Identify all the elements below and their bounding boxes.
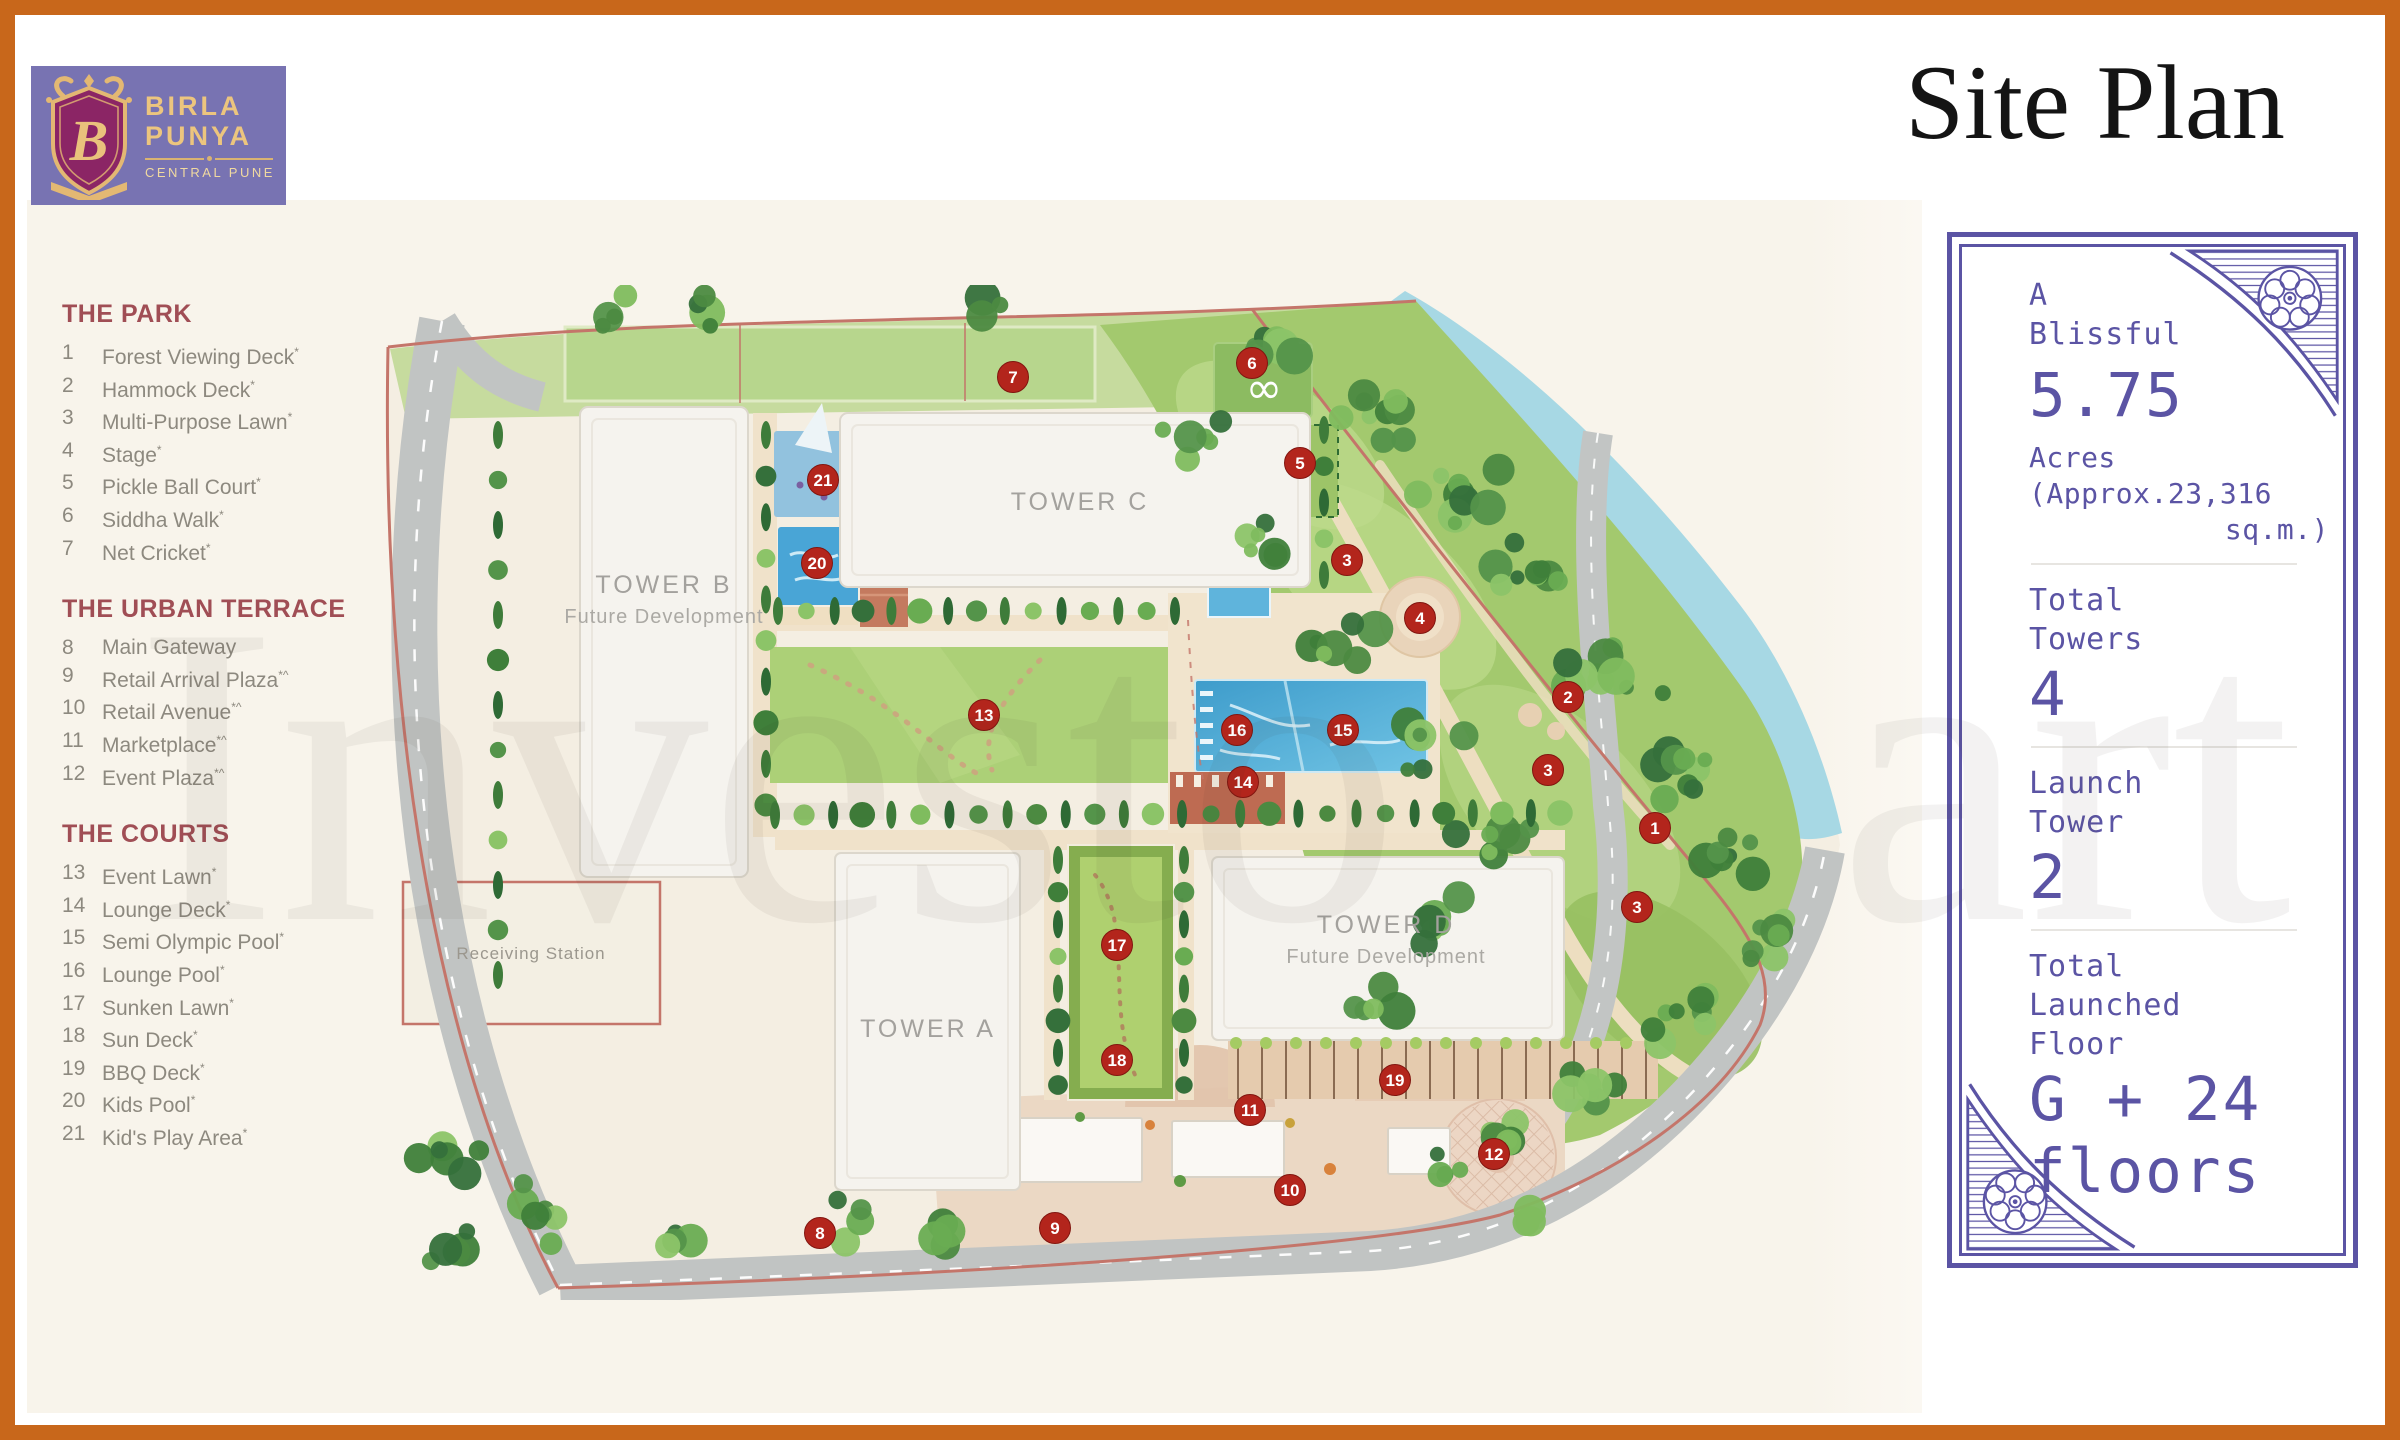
logo-tagline: CENTRAL PUNE [145,165,275,180]
svg-text:2: 2 [1563,688,1572,707]
legend-item: 14Lounge Deck* [62,892,377,925]
svg-text:16: 16 [1228,721,1247,740]
legend-item-label: Stage* [102,437,377,470]
svg-text:12: 12 [1485,1145,1504,1164]
map-marker-3: 3 [1332,545,1363,576]
legend-item-label: Lounge Deck* [102,892,377,925]
legend-item-number: 16 [62,957,102,990]
panel-stat-block: LaunchTower2 [2029,764,2329,914]
panel-stat-value: 5.75 [2029,360,2329,432]
legend-item-number: 6 [62,502,102,535]
legend-item: 18Sun Deck* [62,1022,377,1055]
legend-item-number: 3 [62,404,102,437]
legend-section: THE COURTS13Event Lawn*14Lounge Deck*15S… [62,820,377,1152]
info-panel-content: ABlissful5.75Acres(Approx.23,316sq.m.)To… [2029,276,2329,1208]
legend-item-number: 2 [62,372,102,405]
legend-item-label: Sun Deck* [102,1022,377,1055]
panel-stat-block: ABlissful5.75Acres(Approx.23,316sq.m.) [2029,276,2329,548]
legend-item-label: Net Cricket* [102,535,377,568]
map-marker-18: 18 [1102,1045,1133,1076]
map-marker-6: 6 [1237,348,1268,379]
map-marker-1: 1 [1640,813,1671,844]
svg-text:7: 7 [1008,368,1017,387]
panel-divider [2031,746,2297,748]
legend-item-number: 13 [62,859,102,892]
svg-text:6: 6 [1247,354,1256,373]
map-marker-11: 11 [1235,1095,1266,1126]
map-marker-10: 10 [1275,1175,1306,1206]
legend-item-number: 10 [62,694,102,727]
legend-item-label: Multi-Purpose Lawn* [102,404,377,437]
legend-item-label: Pickle Ball Court* [102,469,377,502]
svg-text:8: 8 [815,1224,824,1243]
receiving-station-label: Receiving Station [456,944,605,963]
legend-item-number: 9 [62,662,102,695]
svg-text:3: 3 [1632,898,1641,917]
hammock-deck-spot [1518,703,1542,727]
legend-item-number: 19 [62,1055,102,1088]
panel-stat-label: Towers [2029,620,2329,659]
legend-item: 6Siddha Walk* [62,502,377,535]
logo-name-line1: BIRLA [145,91,275,121]
panel-stat-value: floors [2029,1136,2329,1208]
panel-stat-label: Launch [2029,764,2329,803]
map-marker-9: 9 [1040,1213,1071,1244]
svg-text:20: 20 [808,554,827,573]
legend-item-number: 15 [62,924,102,957]
tower-a-label: TOWER A [860,1015,996,1043]
legend-item: 16Lounge Pool* [62,957,377,990]
svg-text:14: 14 [1234,773,1253,792]
legend-item-number: 1 [62,339,102,372]
panel-stat-sub: (Approx.23,316 [2029,476,2329,512]
tower-b-label: TOWER B [595,571,732,599]
panel-stat-value: 4 [2029,659,2329,731]
map-marker-19: 19 [1380,1065,1411,1096]
legend-item-label: Sunken Lawn* [102,990,377,1023]
map-marker-3: 3 [1622,892,1653,923]
panel-stat-label: Tower [2029,803,2329,842]
svg-text:3: 3 [1342,551,1351,570]
panel-stat-sub: Acres [2029,440,2329,476]
legend-section-title: THE COURTS [62,820,377,849]
legend-item: 21Kid's Play Area* [62,1120,377,1153]
legend-item-label: Semi Olympic Pool* [102,924,377,957]
svg-text:10: 10 [1281,1181,1300,1200]
legend-item-number: 14 [62,892,102,925]
legend-section: THE URBAN TERRACE8Main Gateway9Retail Ar… [62,595,377,792]
legend-item: 4Stage* [62,437,377,470]
legend-item-label: Lounge Pool* [102,957,377,990]
map-marker-2: 2 [1553,682,1584,713]
panel-stat-label: Floor [2029,1025,2329,1064]
legend-item: 19BBQ Deck* [62,1055,377,1088]
panel-stat-value: G + 24 [2029,1064,2329,1136]
site-plan-map: TOWER BFuture DevelopmentTOWER CTOWER AT… [380,285,1905,1300]
legend-item-number: 11 [62,727,102,760]
legend-item-label: Forest Viewing Deck* [102,339,377,372]
logo-name-line2: PUNYA [145,121,275,151]
svg-text:9: 9 [1050,1219,1059,1238]
legend-item-number: 21 [62,1120,102,1153]
map-marker-14: 14 [1228,767,1259,798]
panel-divider [2031,929,2297,931]
legend-item: 12Event Plaza*^ [62,760,377,793]
panel-stat-block: TotalTowers4 [2029,581,2329,731]
legend-item-label: Retail Avenue*^ [102,694,377,727]
map-marker-16: 16 [1222,715,1253,746]
legend-item: 3Multi-Purpose Lawn* [62,404,377,437]
tower-c-label: TOWER C [1011,488,1150,516]
page-title: Site Plan [1880,42,2310,164]
legend-item-number: 18 [62,1022,102,1055]
legend-item: 2Hammock Deck* [62,372,377,405]
map-marker-13: 13 [969,700,1000,731]
legend-item-number: 7 [62,535,102,568]
map-marker-12: 12 [1479,1139,1510,1170]
legend-item-label: Siddha Walk* [102,502,377,535]
map-marker-20: 20 [802,548,833,579]
panel-stat-block: TotalLaunchedFloorG + 24floors [2029,947,2329,1208]
panel-stat-label: Blissful [2029,315,2329,354]
legend-item: 5Pickle Ball Court* [62,469,377,502]
panel-stat-label: Total [2029,581,2329,620]
svg-text:B: B [69,108,109,173]
legend-item-number: 5 [62,469,102,502]
logo-divider [145,156,273,161]
panel-stat-label: A [2029,276,2329,315]
legend-item-label: Retail Arrival Plaza*^ [102,662,377,695]
legend-item-label: Event Plaza*^ [102,760,377,793]
legend-item: 7Net Cricket* [62,535,377,568]
svg-text:13: 13 [975,706,994,725]
svg-text:17: 17 [1108,936,1127,955]
brand-logo: B BIRLA PUNYA CENTRAL PUNE [31,66,286,205]
legend-item-label: Main Gateway [102,634,377,662]
svg-text:15: 15 [1334,721,1353,740]
tower-b-sublabel: Future Development [564,606,763,628]
svg-text:18: 18 [1108,1051,1127,1070]
legend-item: 11Marketplace*^ [62,727,377,760]
panel-stat-label: Total [2029,947,2329,986]
panel-stat-value: 2 [2029,842,2329,914]
map-marker-5: 5 [1285,448,1316,479]
legend-item-label: BBQ Deck* [102,1055,377,1088]
map-marker-17: 17 [1102,930,1133,961]
legend-item-label: Event Lawn* [102,859,377,892]
svg-text:4: 4 [1415,609,1425,628]
map-marker-8: 8 [805,1218,836,1249]
legend-item-label: Marketplace*^ [102,727,377,760]
svg-text:5: 5 [1295,454,1304,473]
tower-d-sublabel: Future Development [1286,946,1485,968]
legend-item: 17Sunken Lawn* [62,990,377,1023]
legend-item-number: 20 [62,1087,102,1120]
legend-item: 1Forest Viewing Deck* [62,339,377,372]
legend-item-number: 12 [62,760,102,793]
legend-item-number: 4 [62,437,102,470]
logo-shield-icon: B [43,72,135,200]
legend-item-number: 8 [62,634,102,662]
legend-item: 15Semi Olympic Pool* [62,924,377,957]
legend-item-label: Hammock Deck* [102,372,377,405]
legend-section-title: THE URBAN TERRACE [62,595,377,624]
legend-section-title: THE PARK [62,300,377,329]
legend: THE PARK1Forest Viewing Deck*2Hammock De… [62,300,377,1180]
map-marker-7: 7 [998,362,1029,393]
svg-text:1: 1 [1650,819,1659,838]
tower-d-label: TOWER D [1317,911,1456,939]
svg-text:19: 19 [1386,1071,1405,1090]
svg-text:21: 21 [814,471,833,490]
legend-section: THE PARK1Forest Viewing Deck*2Hammock De… [62,300,377,567]
panel-stat-label: Launched [2029,986,2329,1025]
legend-item: 9Retail Arrival Plaza*^ [62,662,377,695]
panel-stat-sub: sq.m.) [2029,512,2329,548]
legend-item: 8Main Gateway [62,634,377,662]
map-marker-21: 21 [808,465,839,496]
legend-item: 13Event Lawn* [62,859,377,892]
info-panel: ABlissful5.75Acres(Approx.23,316sq.m.)To… [1947,232,2358,1268]
legend-item: 10Retail Avenue*^ [62,694,377,727]
svg-text:3: 3 [1543,761,1552,780]
legend-item-label: Kids Pool* [102,1087,377,1120]
legend-item-label: Kid's Play Area* [102,1120,377,1153]
panel-divider [2031,563,2297,565]
legend-item: 20Kids Pool* [62,1087,377,1120]
map-marker-15: 15 [1328,715,1359,746]
legend-item-number: 17 [62,990,102,1023]
map-marker-3: 3 [1533,755,1564,786]
svg-text:11: 11 [1241,1101,1259,1120]
map-marker-4: 4 [1405,603,1436,634]
water-feature [1208,585,1270,617]
